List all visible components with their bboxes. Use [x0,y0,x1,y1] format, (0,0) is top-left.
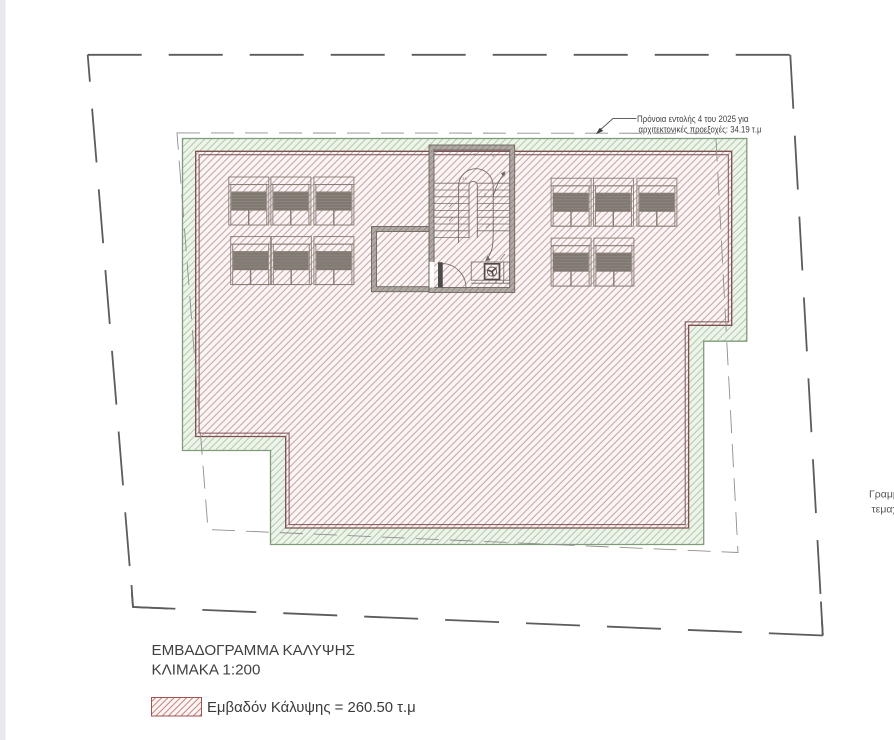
svg-text:αρχιτεκτονικές προεξοχές: 34.1: αρχιτεκτονικές προεξοχές: 34.19 τ.μ [639,124,762,134]
svg-text:14: 14 [462,176,467,181]
svg-text:τεμαχίου: τεμαχίου [872,504,894,516]
svg-text:ΚΛΙΜΑΚΑ 1:200: ΚΛΙΜΑΚΑ 1:200 [152,662,261,679]
svg-text:ΕΜΒΑΔΟΓΡΑΜΜΑ ΚΑΛΥΨΗΣ: ΕΜΒΑΔΟΓΡΑΜΜΑ ΚΑΛΥΨΗΣ [152,642,355,659]
svg-text:Γραμμή: Γραμμή [869,489,894,501]
svg-text:Πρόνοια εντολής 4 του 2025 για: Πρόνοια εντολής 4 του 2025 για [637,114,749,124]
svg-text:Εμβαδόν Κάλυψης = 260.50 τ.μ: Εμβαδόν Κάλυψης = 260.50 τ.μ [207,700,416,716]
